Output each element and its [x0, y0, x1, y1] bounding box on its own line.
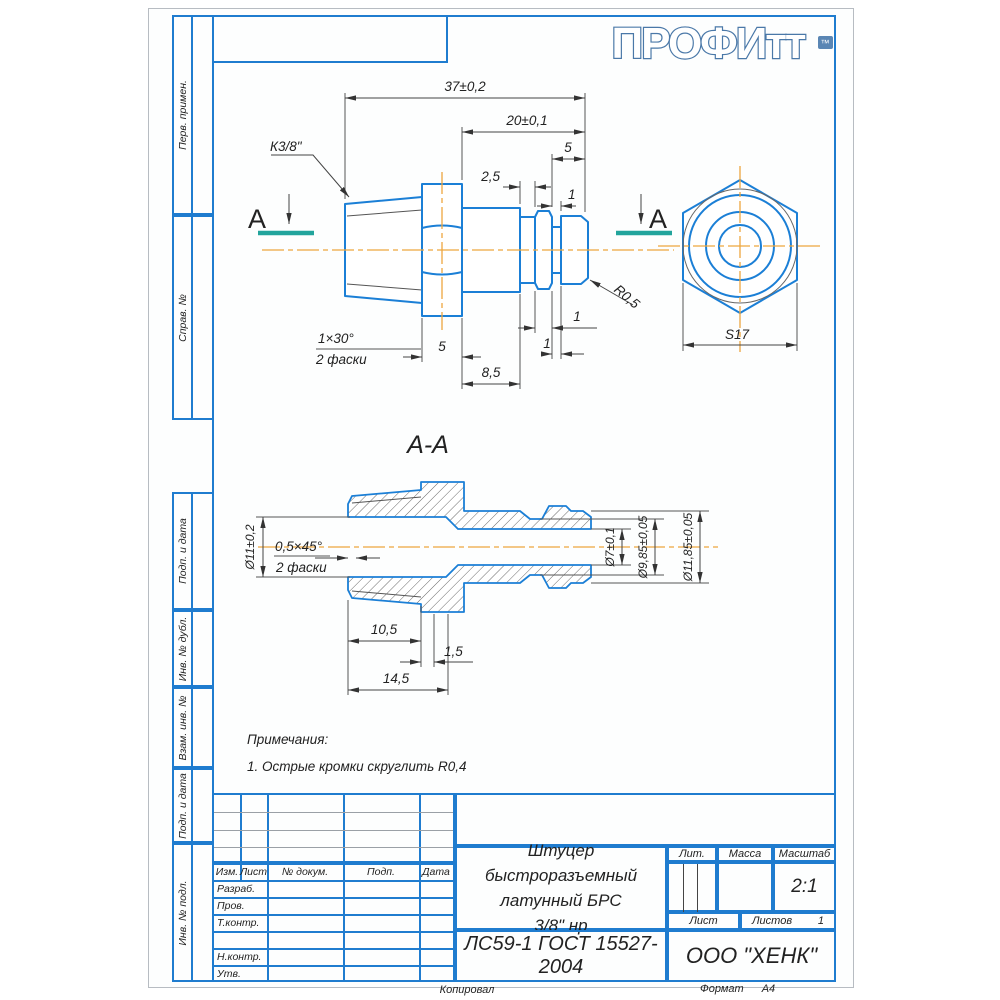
scale-header: Масштаб [773, 846, 836, 862]
sheets-cell: Листов 1 [740, 912, 836, 930]
dim-total-len: 14,5 [383, 671, 410, 686]
company-cell: ООО "ХЕНК" [667, 930, 836, 982]
cut-label-left: А [248, 204, 266, 234]
row-line [214, 931, 453, 933]
section-wall-top [348, 482, 591, 529]
row-nkontr: Н.контр. [217, 950, 261, 965]
dim-groove-dia: Ø9,85±0,05 [636, 515, 650, 579]
cut-label-right: А [649, 204, 667, 234]
section-dimensions: Ø11±0,2 0,5×45° 2 фаски Ø7±0,1 Ø9,85±0,0… [243, 511, 709, 695]
part-name-cell: Штуцер быстроразъемный латунный БРС 3/8"… [455, 846, 667, 930]
dim-hex-len: 5 [438, 339, 446, 354]
section-wall-bottom [348, 565, 591, 612]
grid-line [343, 795, 345, 861]
row-line [214, 897, 453, 899]
row-utv: Утв. [217, 967, 241, 982]
dim-sec-chamfer: 0,5×45° [275, 539, 323, 554]
lit-header: Лит. [667, 846, 717, 862]
dim-groove-len: 1 [543, 336, 551, 351]
sheets-value: 1 [818, 915, 824, 927]
dim-body-length: 20±0,1 [505, 113, 547, 128]
grid-line [419, 795, 421, 861]
col-header-list: Лист [240, 865, 267, 880]
lit-subline [697, 864, 698, 914]
row-line [214, 965, 453, 967]
part-title-line1: Штуцер быстроразъемный [457, 838, 665, 888]
dim-step: 2,5 [480, 169, 500, 184]
dim-sec-chamfer-note: 2 фаски [275, 560, 327, 575]
col-header-data: Дата [419, 865, 453, 880]
scale-value: 2:1 [791, 876, 817, 898]
col-header-dokum: № докум. [267, 865, 343, 880]
dim-outer-dia: Ø11,85±0,05 [681, 512, 695, 582]
row-tkontr: Т.контр. [217, 916, 259, 931]
copied-label: Копировал [407, 983, 527, 997]
lit-label: Лит. [679, 848, 705, 860]
main-view: А А [248, 172, 674, 330]
notes: Примечания: 1. Острые кромки скруглить R… [247, 732, 467, 774]
company-name: ООО "ХЕНК" [686, 943, 817, 969]
note-1: 1. Острые кромки скруглить R0,4 [247, 759, 467, 774]
dim-across-flats: S17 [725, 327, 750, 342]
notes-title: Примечания: [247, 732, 328, 747]
mass-header: Масса [717, 846, 773, 862]
dim-neck-end: 5 [564, 140, 572, 155]
page: { "logo": {"text": "ПРОФИтт", "tm": "™"}… [0, 0, 1000, 1000]
sheets-label: Листов [752, 915, 792, 927]
format-value: А4 [762, 983, 775, 997]
col-header-podp: Подп. [343, 865, 419, 880]
grid-line [240, 795, 242, 861]
revision-grid [212, 793, 455, 863]
sheet-label: Лист [689, 915, 717, 927]
end-view: S17 [658, 166, 822, 352]
grid-line [214, 830, 453, 831]
format-label: Формат [700, 983, 744, 997]
dim-chamfer-note: 2 фаски [315, 352, 367, 367]
grid-line [267, 795, 269, 861]
dim-small-bore: Ø7±0,1 [603, 527, 617, 567]
material-text: ЛС59-1 ГОСТ 15527-2004 [457, 933, 665, 979]
section-title: А-А [405, 431, 449, 459]
dim-cyl-len: 8,5 [482, 365, 501, 380]
grid-line [214, 847, 453, 848]
grid-line [214, 812, 453, 813]
col-header-izm: Изм. [214, 865, 240, 880]
dim-fillet: R0,5 [611, 282, 643, 312]
scale-value-cell: 2:1 [773, 862, 836, 912]
dim-thread-len: 10,5 [371, 622, 398, 637]
dim-chamfer: 1×30° [318, 331, 354, 346]
dim-thread: К3/8" [270, 139, 303, 154]
col-line [419, 865, 421, 980]
dim-collar-small: 1 [568, 187, 576, 202]
col-line [267, 865, 269, 980]
dim-bore-dia: Ø11±0,2 [243, 524, 257, 570]
col-line [343, 865, 345, 980]
sheet-cell: Лист [667, 912, 740, 930]
dim-collar-len: 1 [573, 309, 581, 324]
row-prov: Пров. [217, 899, 245, 914]
row-razrab: Разраб. [217, 882, 255, 897]
format-strip: Формат А4 [700, 983, 775, 997]
material-cell: ЛС59-1 ГОСТ 15527-2004 [455, 930, 667, 982]
mass-label: Масса [729, 848, 762, 860]
dim-undercut-len: 1,5 [444, 644, 463, 659]
lit-subline [683, 864, 684, 914]
scale-label: Масштаб [779, 848, 830, 860]
signature-table: Изм. Лист № докум. Подп. Дата Разраб. Пр… [212, 863, 455, 982]
lit-value-cell [667, 862, 717, 912]
part-title-line2: латунный БРС [500, 888, 621, 913]
mass-value-cell [717, 862, 773, 912]
dim-total-length: 37±0,2 [444, 79, 486, 94]
